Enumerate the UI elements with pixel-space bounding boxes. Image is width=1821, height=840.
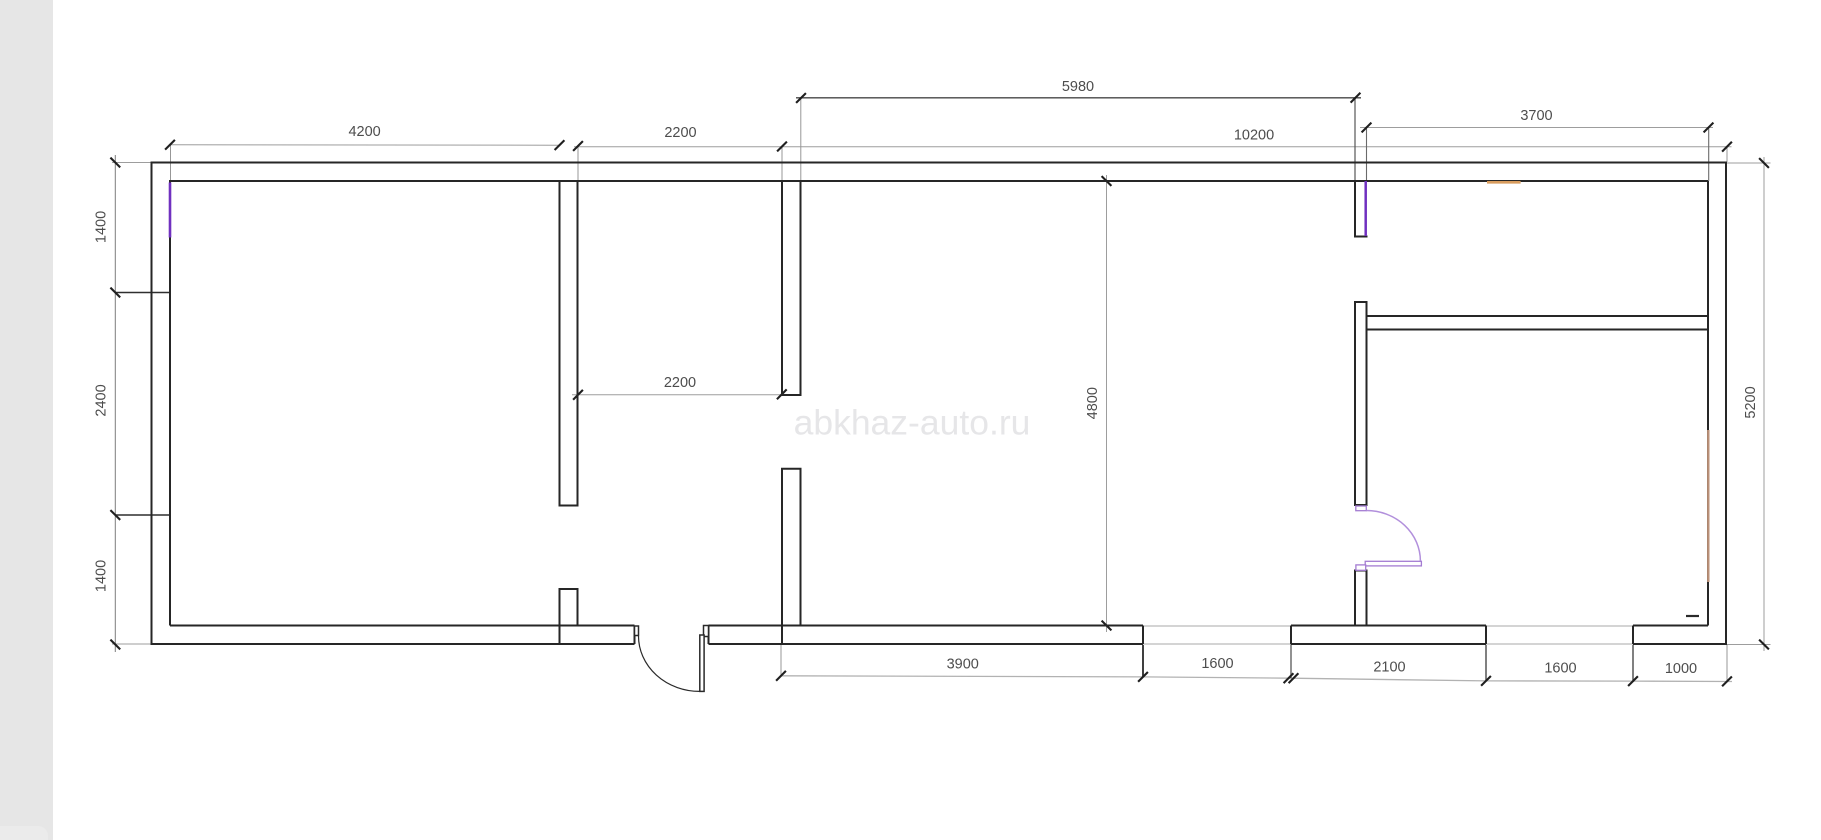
svg-text:2100: 2100 — [1373, 659, 1405, 675]
svg-text:5980: 5980 — [1062, 79, 1094, 95]
svg-text:2400: 2400 — [93, 384, 109, 416]
svg-text:10200: 10200 — [1234, 127, 1274, 143]
svg-text:3700: 3700 — [1520, 108, 1552, 124]
svg-text:2200: 2200 — [664, 125, 696, 141]
svg-text:3900: 3900 — [947, 656, 979, 672]
svg-text:1000: 1000 — [1665, 661, 1697, 677]
svg-text:4800: 4800 — [1085, 387, 1101, 419]
svg-text:5200: 5200 — [1743, 386, 1759, 418]
svg-text:2200: 2200 — [664, 375, 696, 391]
svg-text:1400: 1400 — [93, 560, 109, 592]
svg-text:1600: 1600 — [1201, 656, 1233, 672]
svg-text:4200: 4200 — [348, 124, 380, 140]
svg-text:abkhaz-auto.ru: abkhaz-auto.ru — [794, 403, 1031, 443]
svg-text:1400: 1400 — [93, 211, 109, 243]
svg-text:1600: 1600 — [1544, 660, 1576, 676]
